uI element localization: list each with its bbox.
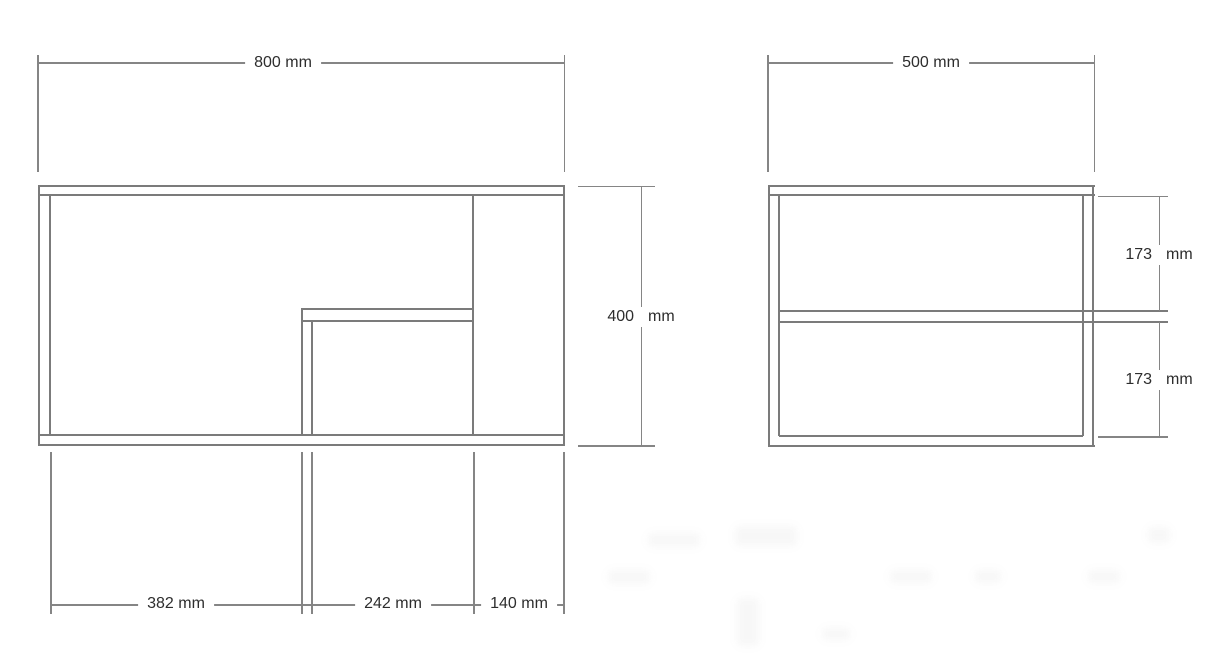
side-shelf-bottom-line [779, 321, 1168, 323]
front-dim-242-label: 242 mm [355, 594, 431, 614]
scan-smudge [1088, 570, 1120, 583]
front-dim-800-extension-right [564, 55, 566, 172]
side-dim-173-tick-top [1098, 196, 1168, 198]
front-dim-140-label: 140 mm [481, 594, 557, 614]
scan-smudge [1148, 527, 1170, 543]
side-dim-173-top-label: 173mm [1123, 245, 1194, 265]
front-bottom-extension-3 [473, 452, 475, 614]
front-bottom-panel-outer-line [38, 444, 565, 446]
front-right-edge-line [563, 185, 565, 446]
front-bottom-extension-2a [301, 452, 303, 614]
front-bottom-extension-1 [50, 452, 52, 614]
front-subdivider-left-line [301, 308, 303, 436]
side-dim-173-tick-bottom [1098, 436, 1168, 438]
scan-smudge [648, 533, 700, 547]
front-shelf-bottom-line [301, 320, 474, 322]
front-shelf-top-line [301, 308, 474, 310]
front-dim-800-label: 800 mm [245, 53, 321, 73]
front-left-panel-outer-line [38, 185, 40, 446]
scan-smudge [735, 526, 797, 546]
scan-smudge [890, 570, 932, 583]
scan-smudge [737, 598, 759, 646]
front-dim-800-extension-left [37, 55, 39, 172]
side-bottom-panel-outer-line [768, 445, 1095, 447]
front-vertical-divider [472, 194, 474, 436]
scan-smudge [822, 628, 850, 640]
scan-smudge [608, 570, 650, 584]
front-subdivider-right-line [311, 320, 313, 436]
side-right-panel-outer-line [1092, 185, 1094, 447]
technical-drawing-canvas: 800 mm 382 mm 242 mm 140 mm 400mm 500 mm [0, 0, 1220, 656]
side-dim-500-extension-right [1094, 55, 1096, 172]
front-top-panel-inner-line [38, 194, 565, 196]
side-top-panel-outer-line [768, 185, 1095, 187]
side-top-panel-inner-line [768, 194, 1095, 196]
side-shelf-top-line [779, 310, 1168, 312]
front-bottom-extension-4 [563, 452, 565, 614]
front-dim-400-label: 400mm [598, 307, 683, 327]
front-dim-400-tick-top [578, 186, 655, 188]
scan-smudge [975, 570, 1001, 583]
front-dim-400-tick-bottom [578, 445, 655, 447]
side-dim-500-label: 500 mm [893, 53, 969, 73]
side-left-panel-inner-line [778, 194, 780, 436]
side-bottom-panel-inner-line [779, 435, 1083, 437]
front-bottom-extension-2b [311, 452, 313, 614]
front-dim-382-label: 382 mm [138, 594, 214, 614]
side-dim-500-extension-left [767, 55, 769, 172]
front-left-panel-inner-line [49, 194, 51, 436]
side-left-panel-outer-line [768, 185, 770, 447]
front-top-panel-outer-line [38, 185, 565, 187]
side-dim-173-bottom-label: 173mm [1123, 370, 1194, 390]
side-right-panel-inner-line [1082, 194, 1084, 436]
